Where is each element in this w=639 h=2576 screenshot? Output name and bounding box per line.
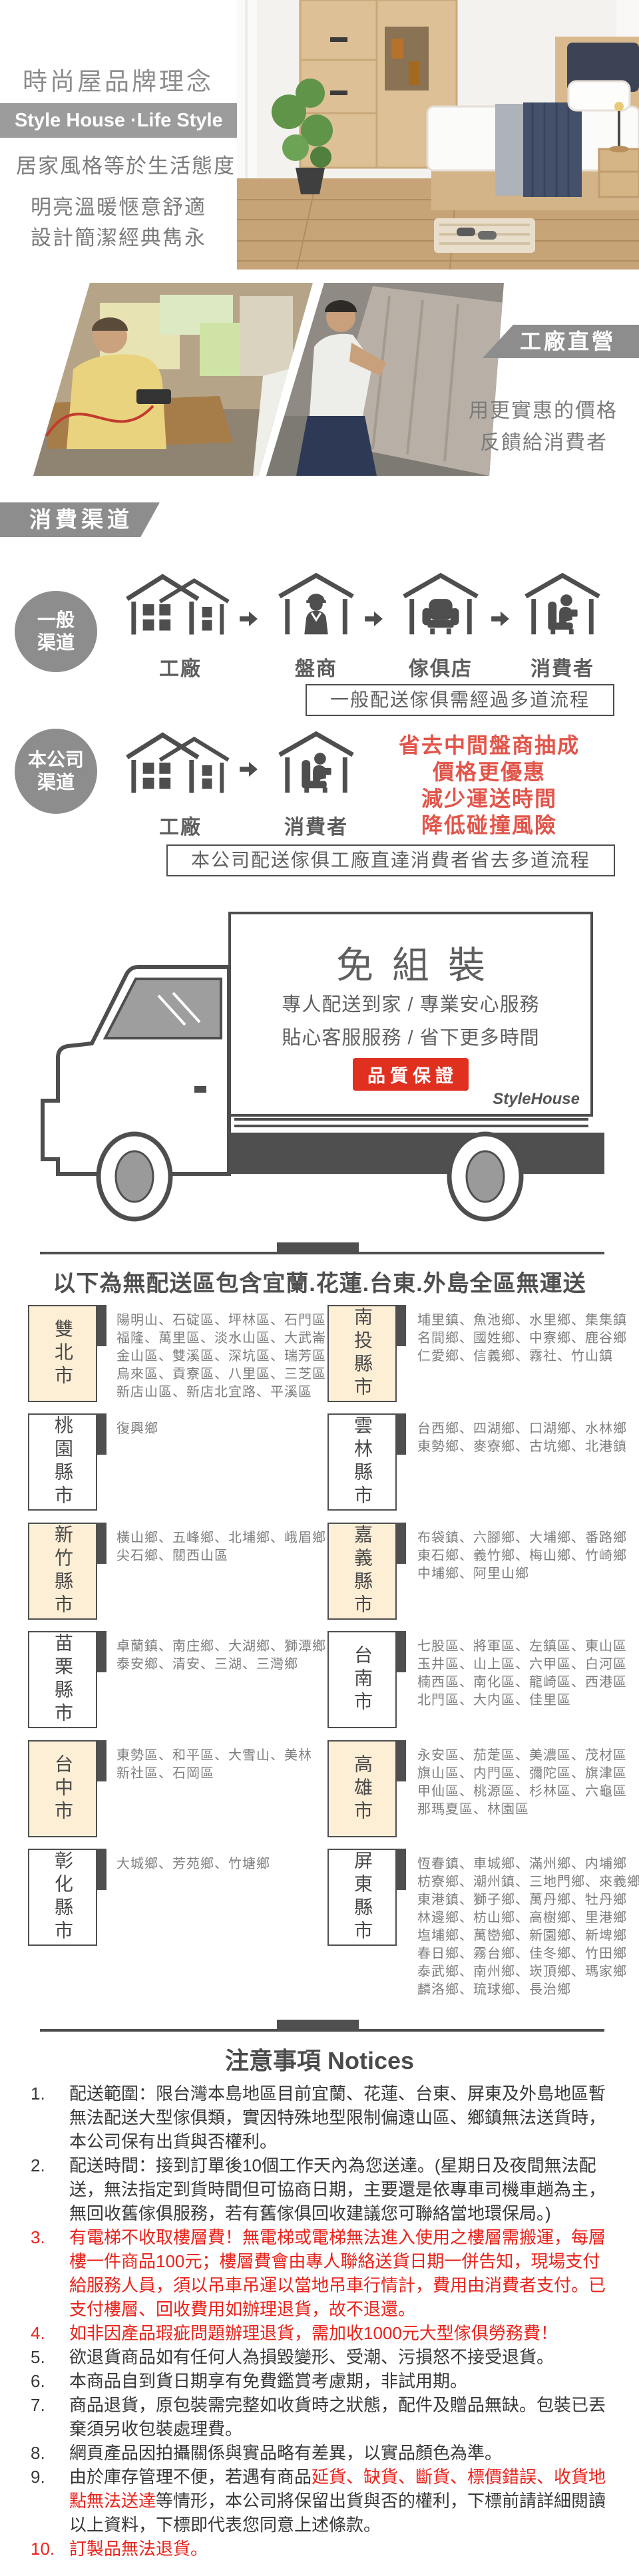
region-line: 埔里鎮、魚池鄉、水里鄉、集集鎮 [417,1312,627,1330]
notice-number: 4. [31,2321,45,2345]
region-name: 屏東縣市 [349,1851,375,1944]
region-label-tab [397,1305,406,1346]
brand-title: 時尚屋品牌理念 [23,61,214,97]
company-benefits: 省去中間盤商抽成 價格更優惠 減少運送時間 降低碰撞風險 [369,732,609,838]
region-lines: 恆春鎮、車城鄉、滿州鄉、内埔鄉枋寮鄉、潮州鎮、三地門鄉、來義鄉東港鎮、獅子鄉、萬… [417,1855,639,1999]
region-name: 苗栗縣市 [49,1633,76,1726]
region-line: 東勢鄉、麥寮鄉、古坑鄉、北港鎮 [417,1438,627,1456]
region-line: 恆春鎮、車城鄉、滿州鄉、内埔鄉 [417,1855,639,1873]
notices-list: 1.配送範圍：限台灣本島地區目前宜蘭、花蓮、台東、屏東及外島地區暫無法配送大型傢… [31,2082,610,2561]
region-name: 台南市 [349,1645,375,1715]
region-lines: 七股區、將軍區、左鎮區、東山區玉井區、山上區、六甲區、白河區楠西區、南化區、龍崎… [417,1638,627,1710]
region-line: 東港鎮、獅子鄉、萬丹鄉、牡丹鄉 [417,1891,639,1909]
region-name: 南投縣市 [349,1307,375,1400]
region-label-tab [97,1849,106,1890]
region-label: 新竹縣市 [28,1523,106,1620]
notice-item: 3.有電梯不收取樓層費！無電梯或電梯無法進入使用之樓層需搬運，每層樓一件商品10… [31,2225,610,2321]
general-channel-badge: 一般 渠道 [15,591,97,672]
region-line: 玉井區、山上區、六甲區、白河區 [417,1656,627,1674]
region-line: 布袋鎮、六腳鄉、大埔鄉、番路鄉 [417,1529,627,1547]
region-label-tab [397,1849,406,1890]
region-line: 枋寮鄉、潮州鎮、三地門鄉、來義鄉 [417,1873,639,1891]
no-delivery-title: 以下為無配送區包含宜蘭.花蓮.台東.外島全區無運送 [0,1265,639,1298]
wholesaler-house-icon [277,571,355,638]
region-label: 苗栗縣市 [28,1631,106,1728]
region-line: 台西鄉、四湖鄉、口湖鄉、水林鄉 [417,1420,627,1438]
notice-text: 網頁產品因拍攝關係與實品略有差異，以實品顏色為準。 [69,2443,502,2463]
notice-text: 本商品自到貨日期享有免費鑑賞考慮期，非試用期。 [69,2371,467,2391]
notice-number: 2. [31,2153,45,2177]
arrow-right-icon [491,611,510,627]
region-name-box: 台中市 [28,1740,97,1837]
promo-page: 時尚屋品牌理念 Style House ·Life Style 居家風格等於生活… [0,0,639,2576]
region-line: 復興鄉 [116,1420,158,1438]
region-line: 新店山區、新店北宜路、平溪區 [116,1383,326,1401]
benefit-line: 減少運送時間 [369,785,609,812]
region-label-tab [397,1413,406,1455]
region-line: 旗山區、内門區、彌陀區、旗津區 [417,1765,627,1783]
region-line: 東石鄉、義竹鄉、梅山鄉、竹崎鄉 [417,1547,627,1565]
notice-item: 2.配送時間：接到訂單後10個工作天內為您送達。(星期日及夜間無法配送，無法指定… [31,2153,610,2225]
region-lines: 大城鄉、芳苑鄉、竹塘鄉 [116,1855,270,1873]
notice-number: 8. [31,2441,45,2465]
notice-text: 訂製品無法退貨。 [69,2539,208,2559]
region-line: 金山區、雙溪區、深坑區、瑞芳區 [116,1348,326,1366]
company-channel-badge: 本公司 渠道 [15,729,97,814]
region-label-tab [397,1740,406,1781]
region-line: 塩埔鄉、萬巒鄉、新園鄉、新埤鄉 [417,1927,639,1945]
divider-line [40,1252,604,1254]
arrow-right-icon [240,761,258,777]
step-label-factory: 工廠 [124,652,236,681]
region-lines: 復興鄉 [116,1420,158,1438]
benefit-line: 降低碰撞風險 [369,812,609,838]
divider-tab [277,1242,359,1252]
step-label-wholesaler: 盤商 [277,652,355,681]
no-assembly-headline: 免組裝 [231,936,590,990]
region-label: 桃園縣市 [28,1413,106,1511]
notice-number: 10. [31,2537,55,2561]
notice-item: 8.網頁產品因拍攝關係與實品略有差異，以實品顏色為準。 [31,2441,610,2465]
brand-line-2: 明亮溫暖愜意舒適 [31,190,206,220]
region-name-box: 屏東縣市 [327,1849,397,1946]
notices-title: 注意事項 Notices [0,2042,639,2076]
badge-line: 渠道 [28,771,84,794]
notice-item: 6.本商品自到貨日期享有免費鑑賞考慮期，非試用期。 [31,2369,610,2393]
region-line: 那瑪夏區、林園區 [417,1801,627,1819]
notice-item: 9.由於庫存管理不便，若遇有商品延貨、缺貨、斷貨、標價錯誤、收貨地點無法送達等情… [31,2465,610,2537]
region-line: 福隆、萬里區、淡水山區、大武崙 [116,1330,326,1348]
notice-text: 有電梯不收取樓層費！無電梯或電梯無法進入使用之樓層需搬運，每層樓一件商品100元… [69,2227,606,2319]
divider-line [40,2029,604,2032]
factory-house-icon [124,571,236,638]
region-label: 嘉義縣市 [327,1523,406,1620]
region-lines: 東勢區、和平區、大雪山、美林新社區、石岡區 [116,1747,312,1783]
region-line: 楠西區、南化區、龍崎區、西港區 [417,1674,627,1692]
notice-number: 6. [31,2369,45,2393]
region-line: 林邊鄉、枋山鄉、高樹鄉、里港鄉 [417,1909,639,1927]
region-name-box: 雲林縣市 [327,1413,397,1511]
region-grid: 雙北市陽明山、石碇區、坪林區、石門區福隆、萬里區、淡水山區、大武崙金山區、雙溪區… [28,1305,614,2024]
badge-line: 本公司 [28,749,84,771]
notice-text: 配送範圍：限台灣本島地區目前宜蘭、花蓮、台東、屏東及外島地區暫無法配送大型傢俱類… [69,2084,606,2151]
region-name-box: 南投縣市 [327,1305,397,1402]
region-line: 泰安鄉、清安、三湖、三灣鄉 [116,1656,326,1674]
region-lines: 布袋鎮、六腳鄉、大埔鄉、番路鄉東石鄉、義竹鄉、梅山鄉、竹崎鄉中埔鄉、阿里山鄉 [417,1529,627,1583]
region-line: 甲仙區、桃源區、杉林區、六龜區 [417,1783,627,1801]
region-label: 台南市 [327,1631,406,1728]
region-label-tab [97,1413,106,1455]
region-line: 春日鄉、霧台鄉、佳冬鄉、竹田鄉 [417,1945,639,1963]
region-name-box: 台南市 [327,1631,397,1728]
notice-item: 5.欲退貨商品如有任何人為損毀變形、受潮、污損怒不接受退貨。 [31,2345,610,2369]
notice-item: 10.訂製品無法退貨。 [31,2537,610,2561]
region-lines: 卓蘭鎮、南庄鄉、大湖鄉、獅潭鄉泰安鄉、清安、三湖、三灣鄉 [116,1638,326,1674]
region-lines: 台西鄉、四湖鄉、口湖鄉、水林鄉東勢鄉、麥寮鄉、古坑鄉、北港鎮 [417,1420,627,1456]
general-channel-note: 一般配送傢俱需經過多道流程 [306,684,614,716]
brand-line-1: 居家風格等於生活態度 [16,149,236,179]
consumer-house-icon [523,571,602,638]
region-label: 高雄市 [327,1740,406,1837]
notice-number: 9. [31,2465,45,2489]
region-line: 卓蘭鎮、南庄鄉、大湖鄉、獅潭鄉 [116,1638,326,1656]
step-label-factory: 工廠 [124,811,236,840]
factory-line-1: 用更實惠的價格 [469,394,618,423]
region-name: 嘉義縣市 [349,1525,375,1618]
region-line: 陽明山、石碇區、坪林區、石門區 [116,1312,326,1330]
stylehouse-logo: StyleHouse [493,1090,580,1109]
region-line: 尖石鄉、關西山區 [116,1547,326,1565]
divider-tab [277,2020,359,2029]
region-label-tab [397,1631,406,1672]
notice-number: 3. [31,2225,45,2249]
region-line: 麟洛鄉、琉球鄉、長治鄉 [417,1981,639,1999]
notice-number: 7. [31,2393,45,2417]
region-line: 大城鄉、芳苑鄉、竹塘鄉 [116,1855,270,1873]
region-name: 雲林縣市 [349,1415,375,1509]
region-name: 高雄市 [349,1754,375,1824]
bedroom-photo [237,0,639,270]
channels-banner: 消費渠道 [0,502,160,537]
region-label: 南投縣市 [327,1305,406,1402]
notice-text: 由於庫存管理不便，若遇有商品 [69,2467,312,2487]
notice-item: 7.商品退貨，原包裝需完整如收貨時之狀態，配件及贈品無缺。包裝已丟棄須另收包裝處… [31,2393,610,2441]
notice-number: 1. [31,2082,45,2106]
region-name-box: 桃園縣市 [28,1413,97,1511]
region-line: 烏來區、貢寮區、八里區、三芝區 [116,1366,326,1383]
region-line: 新社區、石岡區 [116,1765,312,1783]
region-lines: 埔里鎮、魚池鄉、水里鄉、集集鎮名間鄉、國姓鄉、中寮鄉、鹿谷鄉仁愛鄉、信義鄉、霧社… [417,1312,627,1366]
notice-text: 欲退貨商品如有任何人為損毀變形、受潮、污損怒不接受退貨。 [69,2347,554,2367]
company-channel-note: 本公司配送傢俱工廠直達消費者省去多道流程 [166,844,615,876]
region-name: 台中市 [49,1754,76,1824]
notice-text: 如非因產品瑕疵問題辦理退貨，需加收1000元大型傢俱勞務費！ [69,2323,558,2343]
notice-item: 4.如非因產品瑕疵問題辦理退貨，需加收1000元大型傢俱勞務費！ [31,2321,610,2345]
arrow-right-icon [240,611,258,627]
arrow-right-icon [365,611,383,627]
badge-line: 一般 [37,609,75,632]
region-lines: 永安區、茄萣區、美濃區、茂材區旗山區、内門區、彌陀區、旗津區甲仙區、桃源區、杉林… [417,1747,627,1819]
region-label-tab [97,1523,106,1564]
step-label-consumer: 消費者 [277,811,355,840]
factory-house-icon [124,729,236,796]
region-line: 東勢區、和平區、大雪山、美林 [116,1747,312,1765]
region-label-tab [97,1305,106,1346]
region-line: 泰武鄉、南州鄉、崁頂鄉、瑪家鄉 [417,1963,639,1981]
region-line: 名間鄉、國姓鄉、中寮鄉、鹿谷鄉 [417,1330,627,1348]
region-line: 七股區、將軍區、左鎮區、東山區 [417,1638,627,1656]
region-line: 北門區、大内區、佳里區 [417,1692,627,1710]
notice-number: 5. [31,2345,45,2369]
region-lines: 橫山鄉、五峰鄉、北埔鄉、峨眉鄉尖石鄉、關西山區 [116,1529,326,1565]
region-name: 桃園縣市 [49,1415,76,1509]
benefit-line: 價格更優惠 [369,759,609,785]
region-label-tab [397,1523,406,1564]
factory-line-2: 反饋給消費者 [480,426,608,455]
region-name: 彰化縣市 [49,1851,76,1944]
region-name-box: 嘉義縣市 [327,1523,397,1620]
furniture-store-house-icon [401,571,480,638]
region-line: 中埔鄉、阿里山鄉 [417,1565,627,1583]
consumer-house-icon [277,729,355,796]
truck-billboard: 免組裝 專人配送到家 / 專業安心服務 貼心客服服務 / 省下更多時間 品質保證… [228,912,593,1117]
step-label-consumer: 消費者 [523,652,602,681]
region-name: 新竹縣市 [49,1525,76,1618]
region-label: 雲林縣市 [327,1413,406,1511]
region-name-box: 新竹縣市 [28,1523,97,1620]
notice-item: 1.配送範圍：限台灣本島地區目前宜蘭、花蓮、台東、屏東及外島地區暫無法配送大型傢… [31,2082,610,2153]
quality-badge: 品質保證 [353,1058,469,1091]
region-line: 仁愛鄉、信義鄉、霧社、竹山鎮 [417,1348,627,1366]
region-name-box: 苗栗縣市 [28,1631,97,1728]
brand-line-3: 設計簡潔經典雋永 [31,221,206,251]
step-label-furniture-store: 傢俱店 [401,652,480,681]
region-lines: 陽明山、石碇區、坪林區、石門區福隆、萬里區、淡水山區、大武崙金山區、雙溪區、深坑… [116,1312,326,1401]
region-name-box: 高雄市 [327,1740,397,1837]
region-label: 台中市 [28,1740,106,1837]
region-line: 永安區、茄萣區、美濃區、茂材區 [417,1747,627,1765]
region-name: 雙北市 [49,1319,76,1389]
notice-text: 商品退貨，原包裝需完整如收貨時之狀態，配件及贈品無缺。包裝已丟棄須另收包裝處理費… [69,2395,606,2439]
truck-service-line-1: 專人配送到家 / 專業安心服務 [231,989,590,1017]
region-label: 彰化縣市 [28,1849,106,1946]
region-label: 屏東縣市 [327,1849,406,1946]
region-label: 雙北市 [28,1305,106,1402]
badge-line: 渠道 [37,632,75,654]
region-line: 橫山鄉、五峰鄉、北埔鄉、峨眉鄉 [116,1529,326,1547]
region-label-tab [97,1631,106,1672]
notice-text: 配送時間：接到訂單後10個工作天內為您送達。(星期日及夜間無法配送，無法指定到貨… [69,2155,606,2223]
benefit-line: 省去中間盤商抽成 [369,732,609,759]
region-label-tab [97,1740,106,1781]
brand-banner: Style House ·Life Style [0,103,237,138]
region-name-box: 雙北市 [28,1305,97,1402]
region-name-box: 彰化縣市 [28,1849,97,1946]
truck-service-line-2: 貼心客服服務 / 省下更多時間 [231,1022,590,1050]
